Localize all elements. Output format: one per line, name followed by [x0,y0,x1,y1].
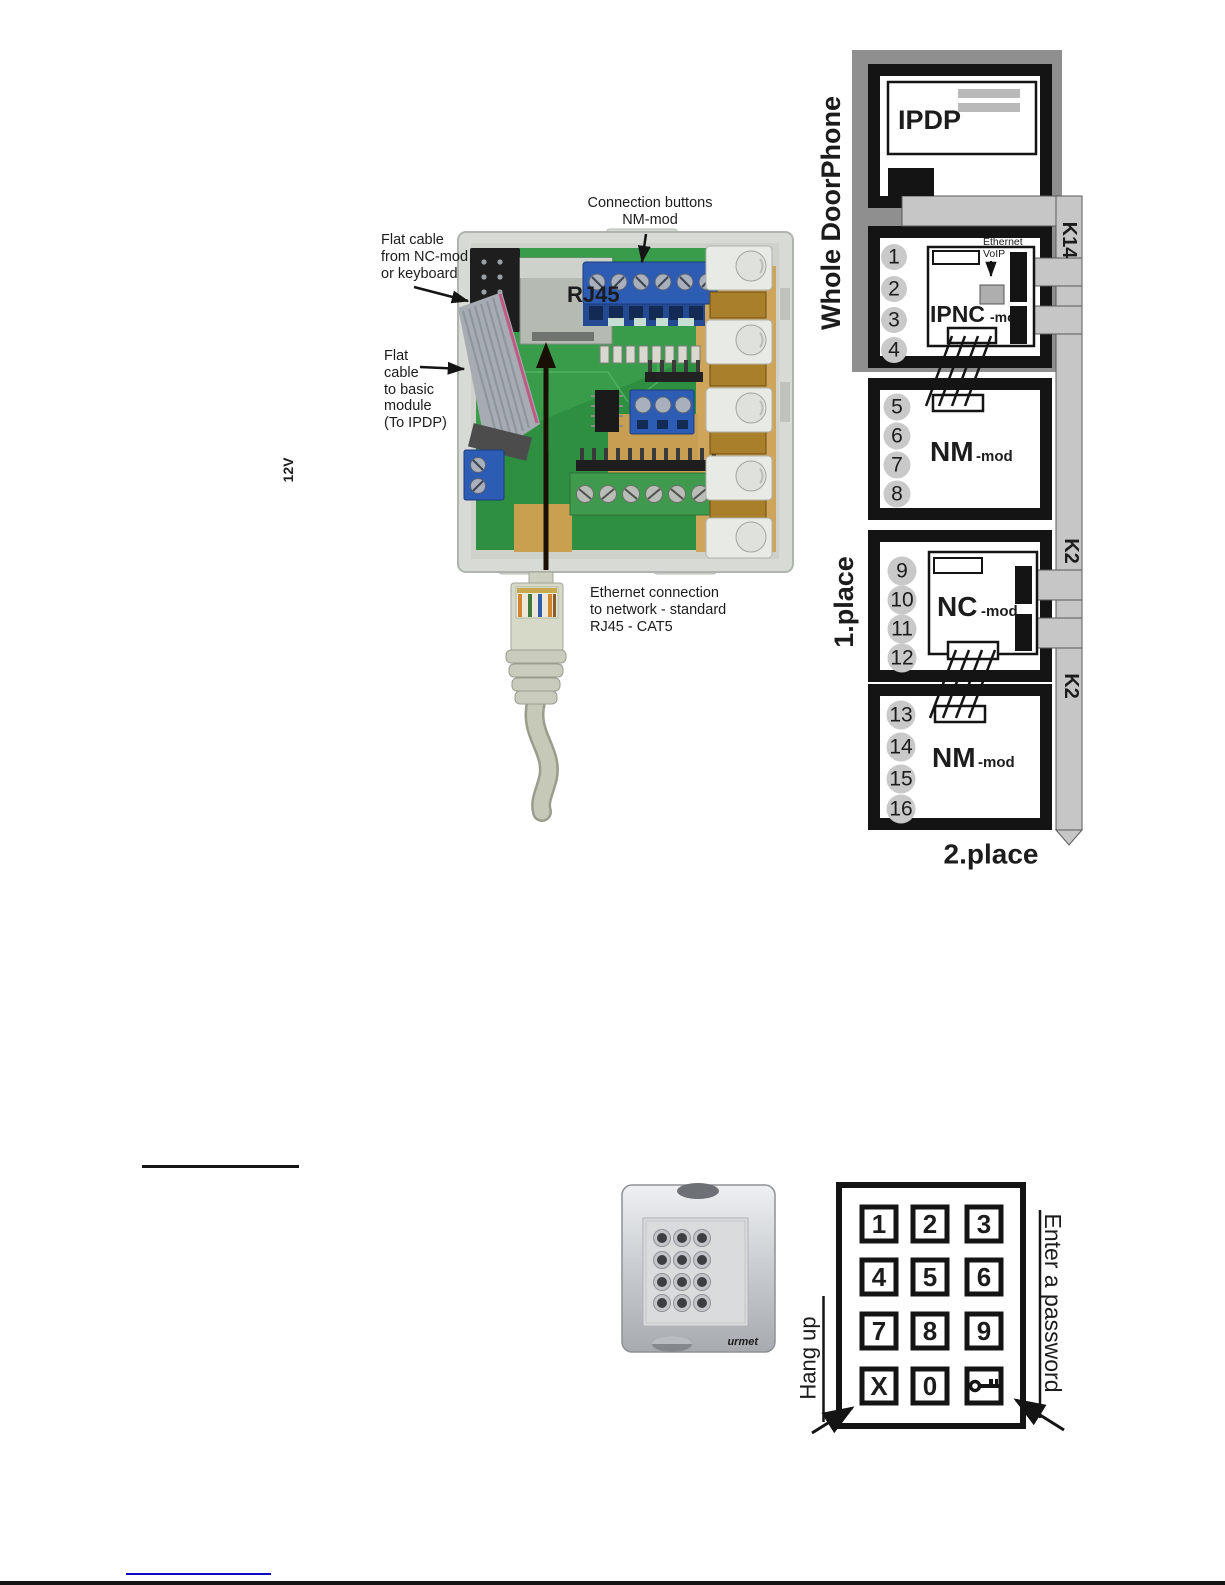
connection-buttons-annotation: Connection buttons NM-mod [570,195,730,229]
cable-vertical-run [1056,196,1082,830]
key-5: 5 [923,1262,937,1292]
keypad-diagram: 1 2 3 4 5 6 7 8 9 X 0 Hang up [796,1185,1067,1433]
terminal-number: 6 [891,425,903,448]
nm2-label: NM [932,742,976,773]
page-graphics: RJ45 12V [0,0,1225,1585]
terminal-number: 16 [889,798,912,821]
hang-up-label: Hang up [796,1316,821,1399]
terminal-number: 8 [891,483,903,506]
keypad-brand: urmet [727,1336,759,1348]
key-4: 4 [872,1262,887,1292]
ethernet-label: Ethernet [983,236,1023,248]
pcb-module-photo: RJ45 12V [280,229,793,574]
nm1-label-suffix: -mod [976,448,1013,465]
terminal-number: 13 [889,704,912,727]
page-bottom-border [0,1581,1225,1585]
nc-connector-upper [1015,566,1032,604]
rj45-wires [518,594,556,617]
cable-k14-horizontal [902,196,1082,226]
terminal-block-3 [630,390,694,434]
cable-label-k2-upper: K2 [1060,538,1082,564]
terminal-number: 2 [888,278,900,301]
manual-page: RJ45 12V [0,0,1225,1585]
flat-cable-to-annotation: Flat cable to basic module (To IPDP) [384,348,494,432]
keypad-photo: urmet [622,1183,775,1352]
key-1: 1 [872,1209,886,1239]
voip-label: VoIP [983,248,1005,260]
key-x: X [870,1371,888,1401]
ethernet-connection-annotation: Ethernet connection to network - standar… [590,585,760,635]
whole-doorphone-label: Whole DoorPhone [816,96,846,330]
enter-password-label: Enter a password [1040,1214,1066,1393]
pcb-12v-label: 12V [280,457,296,483]
nm2-label-suffix: -mod [978,754,1015,771]
terminal-block-2 [464,450,504,500]
doorphone-wiring-diagram: K14 K2 K2 IPDP 1 2 3 4 Ethernet [816,50,1082,870]
key-7: 7 [872,1316,886,1346]
ipnc-connector-k2 [1010,306,1027,344]
terminal-number: 5 [891,396,903,419]
terminal-number: 12 [890,647,913,670]
ethernet-cable-photo [506,572,566,812]
cable-boot [506,650,566,704]
terminal-number: 11 [891,618,913,641]
key-0: 0 [923,1371,937,1401]
place2-label: 2.place [944,839,1039,870]
key-2: 2 [923,1209,937,1239]
ipdp-label: IPDP [898,105,961,135]
footer-link-underline[interactable] [126,1573,271,1575]
terminal-number: 14 [889,736,913,759]
cable-label-k14: K14 [1058,222,1080,260]
ipnc-label: IPNC [930,301,985,327]
cable-end-tip [1056,830,1082,845]
terminal-number: 15 [889,768,912,791]
nc-label-suffix: -mod [981,603,1018,620]
ipnc-connector-k14 [1010,252,1027,302]
terminal-number: 1 [888,246,900,269]
rj45-photo-label: RJ45 [567,282,620,307]
nc-connector-lower [1015,614,1032,651]
place1-label: 1.place [829,556,859,648]
terminal-number: 9 [896,560,908,583]
flat-cable-from-annotation: Flat cable from NC-mod or keyboard [381,232,521,282]
key-6: 6 [977,1262,991,1292]
cable-label-k2-lower: K2 [1060,673,1082,699]
nc-label: NC [937,591,977,622]
ic-chip [595,390,619,432]
terminal-number: 4 [888,339,900,362]
terminal-number: 7 [891,454,903,477]
terminal-number: 10 [890,589,913,612]
key-3: 3 [977,1209,991,1239]
call-buttons-column [706,246,772,558]
nm1-label: NM [930,436,974,467]
terminal-number: 3 [888,309,900,332]
ipdp-connector [888,168,934,196]
key-8: 8 [923,1316,937,1346]
key-9: 9 [977,1316,991,1346]
section-heading-rule [142,1165,299,1168]
